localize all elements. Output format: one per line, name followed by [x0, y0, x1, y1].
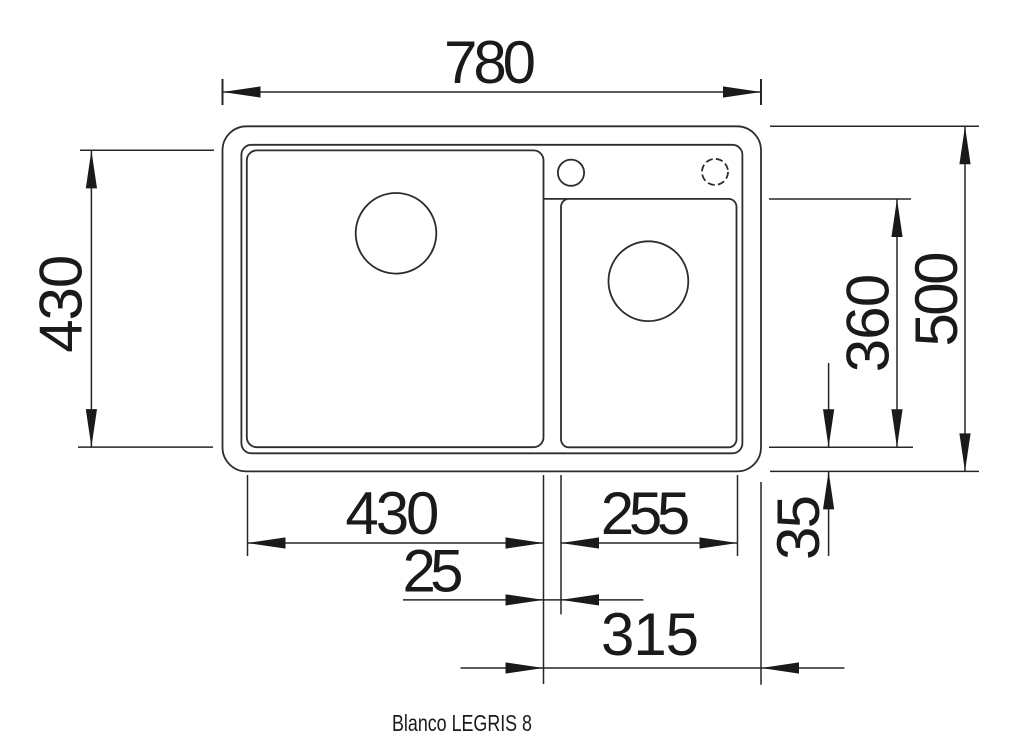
svg-text:25: 25 [403, 538, 464, 605]
svg-text:360: 360 [835, 274, 902, 373]
svg-text:315: 315 [601, 601, 699, 668]
svg-text:780: 780 [444, 29, 536, 96]
svg-text:255: 255 [601, 480, 691, 547]
svg-text:Blanco LEGRIS 8: Blanco LEGRIS 8 [392, 710, 532, 735]
svg-text:500: 500 [903, 252, 970, 347]
svg-text:35: 35 [765, 495, 832, 560]
svg-text:430: 430 [28, 255, 95, 353]
